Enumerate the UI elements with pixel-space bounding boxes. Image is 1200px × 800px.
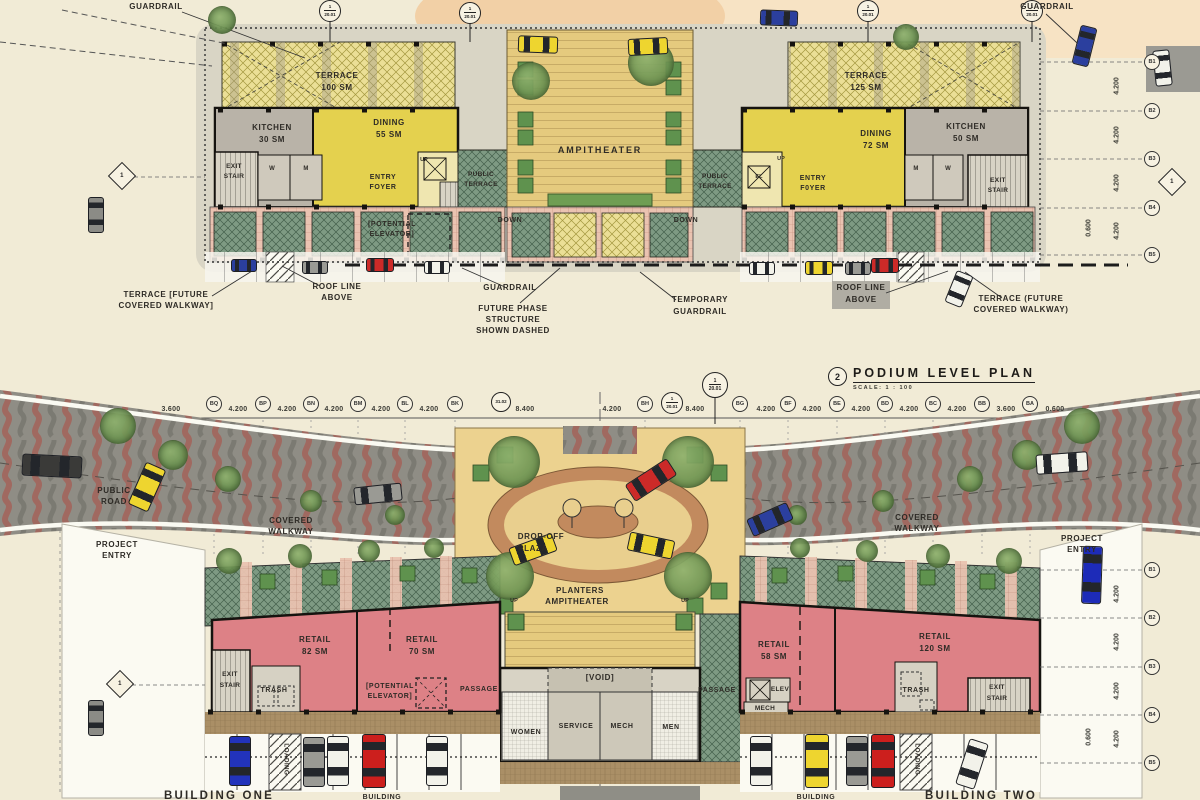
public-terrace-left-label: PUBLIC: [468, 172, 494, 179]
ampitheater-ground-label: AMPITHEATER: [545, 598, 609, 606]
dimension-vertical: 4.200: [1114, 222, 1121, 240]
dimension: 8.400: [515, 406, 534, 413]
passage-left-label: PASSAGE: [460, 686, 498, 693]
exit-stair-left-label2: STAIR: [224, 174, 245, 181]
dimension-vertical: 4.200: [1114, 585, 1121, 603]
entry-foyer-left-label: ENTRY: [370, 174, 396, 181]
public-terrace-right-label2: TERRACE: [698, 184, 732, 191]
callout-dome-marker: 31.02: [491, 392, 511, 412]
tree: [996, 548, 1022, 574]
drawing-title-block: 2 PODIUM LEVEL PLAN SCALE: 1 : 100: [828, 367, 1035, 391]
taxi-car: [805, 734, 829, 788]
retail-82-area: 82 SM: [302, 648, 328, 656]
tree: [664, 552, 712, 600]
up-right-label: UP: [777, 157, 785, 163]
tree: [216, 548, 242, 574]
grid-bubble: B1: [1144, 562, 1160, 578]
grid-bubble: B2: [1144, 610, 1160, 626]
roof-line-left-note2: ABOVE: [321, 294, 352, 302]
building-partial-label: BUILDING: [363, 794, 402, 800]
tree: [893, 24, 919, 50]
dimension: 4.200: [851, 406, 870, 413]
guardrail-label-top-right: GUARDRAIL: [1020, 3, 1073, 11]
terrace-future-right-note2: COVERED WALKWAY): [973, 306, 1068, 314]
guardrail-label-top-left: GUARDRAIL: [129, 3, 182, 11]
ampitheater-label: AMPITHEATER: [558, 146, 642, 155]
entry-foyer-right-label2: F0YER: [800, 185, 826, 192]
wc-w-right: W: [945, 166, 951, 172]
roof-line-right-note: ROOF LINE: [837, 284, 886, 292]
future-phase-note3: SHOWN DASHED: [476, 327, 550, 335]
grid-bubble: BL: [397, 396, 413, 412]
retail-58-label: RETAIL: [758, 641, 790, 649]
women-label: WOMEN: [511, 729, 542, 736]
keynote-balloon: 120.01: [319, 0, 341, 22]
potential-elevator-label2: ELEVATOR]: [370, 231, 415, 238]
car: [21, 453, 82, 478]
grid-bubble: BF: [780, 396, 796, 412]
potential-elevator-label: [POTENTIAL: [368, 221, 416, 228]
loading-b2-label: LOADING: [913, 743, 920, 775]
down-left-label: DOWN: [498, 217, 523, 224]
tree: [158, 440, 188, 470]
guardrail-center-note: GUARDRAIL: [483, 284, 536, 292]
grid-bubble: B5: [1144, 755, 1160, 771]
car: [366, 258, 394, 272]
section-marker: 120.01: [661, 392, 683, 414]
dimension: 4.200: [371, 406, 390, 413]
car: [302, 261, 328, 274]
grid-bubble: BP: [255, 396, 271, 412]
taxi-car: [628, 37, 669, 56]
project-entry-right-label: PROJECT: [1061, 535, 1103, 543]
elevator-right-label: EL: [755, 175, 762, 181]
project-entry-left-label2: ENTRY: [102, 552, 132, 560]
tree: [488, 436, 540, 488]
grid-bubble: B3: [1144, 151, 1160, 167]
public-terrace-right-label: PUBLIC: [702, 174, 728, 181]
retail-120-area: 120 SM: [919, 645, 950, 653]
public-road-label: PUBLIC: [97, 487, 130, 495]
tree: [856, 540, 878, 562]
dimension-vertical: 4.200: [1114, 633, 1121, 651]
keynote-balloon: 120.01: [459, 2, 481, 24]
void-label: [VOID]: [586, 674, 615, 682]
retail-120-label: RETAIL: [919, 633, 951, 641]
terrace-right-label: TERRACE: [845, 72, 888, 80]
men-label: MEN: [662, 724, 679, 731]
grid-bubble: BM: [350, 396, 366, 412]
exit-stair-right-label: EXIT: [990, 178, 1006, 185]
dimension-vertical: 4.200: [1114, 126, 1121, 144]
tree: [662, 436, 714, 488]
car: [871, 734, 895, 788]
dimension: 4.200: [277, 406, 296, 413]
grid-bubble: B4: [1144, 707, 1160, 723]
exit-stair-b1-label2: STAIR: [220, 683, 241, 690]
down-right-label: DOWN: [674, 217, 699, 224]
tree: [926, 544, 950, 568]
exit-stair-b2-label2: STAIR: [987, 696, 1008, 703]
tree: [957, 466, 983, 492]
car: [1081, 546, 1103, 605]
grid-bubble: BD: [877, 396, 893, 412]
building-one-title: BUILDING ONE: [164, 791, 274, 800]
tree: [512, 62, 550, 100]
car: [303, 737, 325, 787]
dimension: 4.200: [899, 406, 918, 413]
tree: [288, 544, 312, 568]
dimension: 4.200: [802, 406, 821, 413]
keynote-balloon: 120.01: [857, 0, 879, 22]
mech-label: MECH: [610, 723, 633, 730]
dimension: 4.200: [324, 406, 343, 413]
service-label: SERVICE: [559, 723, 594, 730]
tree: [358, 540, 380, 562]
tree: [872, 490, 894, 512]
dimension-vertical: 4.200: [1114, 730, 1121, 748]
car: [760, 9, 799, 26]
wc-w-left: W: [269, 166, 275, 172]
building-partial-label: BUILDING: [797, 794, 836, 800]
car: [750, 736, 772, 786]
kitchen-left-label: KITCHEN: [252, 124, 292, 132]
taxi-car: [518, 35, 559, 53]
dimension-vertical: 4.200: [1114, 174, 1121, 192]
keynote-balloon: 120.01: [702, 372, 728, 398]
kitchen-right-label: KITCHEN: [946, 123, 986, 131]
exit-stair-b1-label: EXIT: [222, 672, 238, 679]
retail-82-label: RETAIL: [299, 636, 331, 644]
tree: [385, 505, 405, 525]
retail-70-area: 70 SM: [409, 648, 435, 656]
dimension: 4.200: [419, 406, 438, 413]
kitchen-left-area: 30 SM: [259, 136, 285, 144]
grid-bubble: BQ: [206, 396, 222, 412]
retail-58-area: 58 SM: [761, 653, 787, 661]
car: [871, 258, 899, 273]
up-marker: UP: [510, 599, 518, 605]
building-two-title: BUILDING TWO: [925, 791, 1037, 800]
car: [426, 736, 448, 786]
tree: [1064, 408, 1100, 444]
grid-bubble: B3: [1144, 659, 1160, 675]
car: [229, 736, 251, 786]
grid-bubble: BA: [1022, 396, 1038, 412]
future-phase-note2: STRUCTURE: [486, 316, 541, 324]
public-road-label2: ROAD: [101, 498, 127, 506]
drawing-number-bubble: 2: [828, 367, 847, 386]
elev-b2-label: ELEV: [771, 687, 789, 694]
tree: [208, 6, 236, 34]
dimension-vertical: 0.600: [1086, 219, 1093, 237]
up-left-label: UP: [420, 158, 428, 164]
dimension: 4.200: [756, 406, 775, 413]
dining-left-area: 55 SM: [376, 131, 402, 139]
car: [327, 736, 349, 786]
covered-walkway-left-label: COVERED: [269, 517, 313, 525]
public-terrace-left-label2: TERRACE: [464, 182, 498, 189]
potential-elevator-ground-label2: ELEVATOR]: [368, 693, 413, 700]
covered-walkway-right-label2: WALKWAY: [894, 525, 939, 533]
passage-right-label: PASSAGE: [698, 687, 736, 694]
dimension-vertical: 4.200: [1114, 77, 1121, 95]
exit-stair-right-label2: STAIR: [988, 188, 1009, 195]
dining-right-label: DINING: [860, 130, 892, 138]
potential-elevator-ground-label: [POTENTIAL: [366, 683, 414, 690]
dimension: 4.200: [947, 406, 966, 413]
dimension: 8.400: [685, 406, 704, 413]
tree: [424, 538, 444, 558]
drop-off-label: DROP-OFF: [518, 533, 565, 541]
car: [845, 262, 871, 275]
trash-b2-label: TRASH: [902, 687, 929, 694]
car: [846, 736, 868, 786]
up-marker: UP: [681, 599, 689, 605]
covered-walkway-left-label2: WALKWAY: [268, 528, 313, 536]
grid-bubble: BE: [829, 396, 845, 412]
future-phase-note: FUTURE PHASE: [478, 305, 547, 313]
car: [749, 262, 775, 275]
kitchen-right-area: 50 SM: [953, 135, 979, 143]
dimension: 3.600: [996, 406, 1015, 413]
retail-70-label: RETAIL: [406, 636, 438, 644]
mech-b2-label: MECH: [755, 706, 775, 713]
tree: [100, 408, 136, 444]
car: [231, 259, 257, 272]
car: [362, 734, 386, 788]
dining-left-label: DINING: [373, 119, 405, 127]
planters-label: PLANTERS: [556, 587, 604, 595]
architectural-plan-sheet: GUARDRAIL GUARDRAIL TERRACE 100 SM KITCH…: [0, 0, 1200, 800]
wc-m-left: M: [303, 166, 308, 172]
temporary-guardrail-note: TEMPORARY: [672, 296, 728, 304]
dimension-vertical: 0.600: [1086, 728, 1093, 746]
terrace-right-area: 125 SM: [850, 84, 881, 92]
tree: [215, 466, 241, 492]
project-entry-left-label: PROJECT: [96, 541, 138, 549]
terrace-left-area: 100 SM: [321, 84, 352, 92]
entry-foyer-left-label2: FOYER: [369, 184, 396, 191]
covered-walkway-right-label: COVERED: [895, 514, 939, 522]
terrace-future-right-note: TERRACE (FUTURE: [979, 295, 1064, 303]
dimension-vertical: 4.200: [1114, 682, 1121, 700]
terrace-future-left-note: TERRACE [FUTURE: [124, 291, 209, 299]
drop-off-label2: PLAZA: [518, 545, 548, 553]
grid-bubble: BN: [303, 396, 319, 412]
grid-bubble: BG: [732, 396, 748, 412]
grid-bubble: B4: [1144, 200, 1160, 216]
trash-b1-label: TRASH: [260, 687, 287, 694]
drawing-scale: SCALE: 1 : 100: [853, 385, 1035, 391]
roof-line-left-note: ROOF LINE: [313, 283, 362, 291]
grid-bubble: BH: [637, 396, 653, 412]
temporary-guardrail-note2: GUARDRAIL: [673, 308, 726, 316]
exit-stair-b2-label: EXIT: [989, 685, 1005, 692]
terrace-left-label: TERRACE: [316, 72, 359, 80]
car: [424, 261, 450, 274]
grid-bubble: B5: [1144, 247, 1160, 263]
loading-b1-label: LOADING: [282, 743, 289, 775]
car: [88, 700, 104, 736]
dimension: 3.600: [161, 406, 180, 413]
dimension: 0.600: [1045, 406, 1064, 413]
car: [1035, 451, 1088, 475]
car: [88, 197, 104, 233]
terrace-future-left-note2: COVERED WALKWAY]: [118, 302, 213, 310]
dimension: 4.200: [228, 406, 247, 413]
tree: [790, 538, 810, 558]
grid-bubble: B1: [1144, 54, 1160, 70]
exit-stair-left-label: EXIT: [226, 164, 242, 171]
dimension: 4.200: [602, 406, 621, 413]
drawing-title: PODIUM LEVEL PLAN: [853, 367, 1035, 383]
taxi-car: [805, 261, 833, 275]
tree: [300, 490, 322, 512]
entry-foyer-right-label: ENTRY: [800, 175, 826, 182]
grid-bubble: B2: [1144, 103, 1160, 119]
grid-bubble: BK: [447, 396, 463, 412]
project-entry-right-label2: ENTRY: [1067, 546, 1097, 554]
roof-line-right-note2: ABOVE: [845, 296, 876, 304]
wc-m-right: M: [913, 166, 918, 172]
grid-bubble: BB: [974, 396, 990, 412]
grid-bubble: BC: [925, 396, 941, 412]
dining-right-area: 72 SM: [863, 142, 889, 150]
